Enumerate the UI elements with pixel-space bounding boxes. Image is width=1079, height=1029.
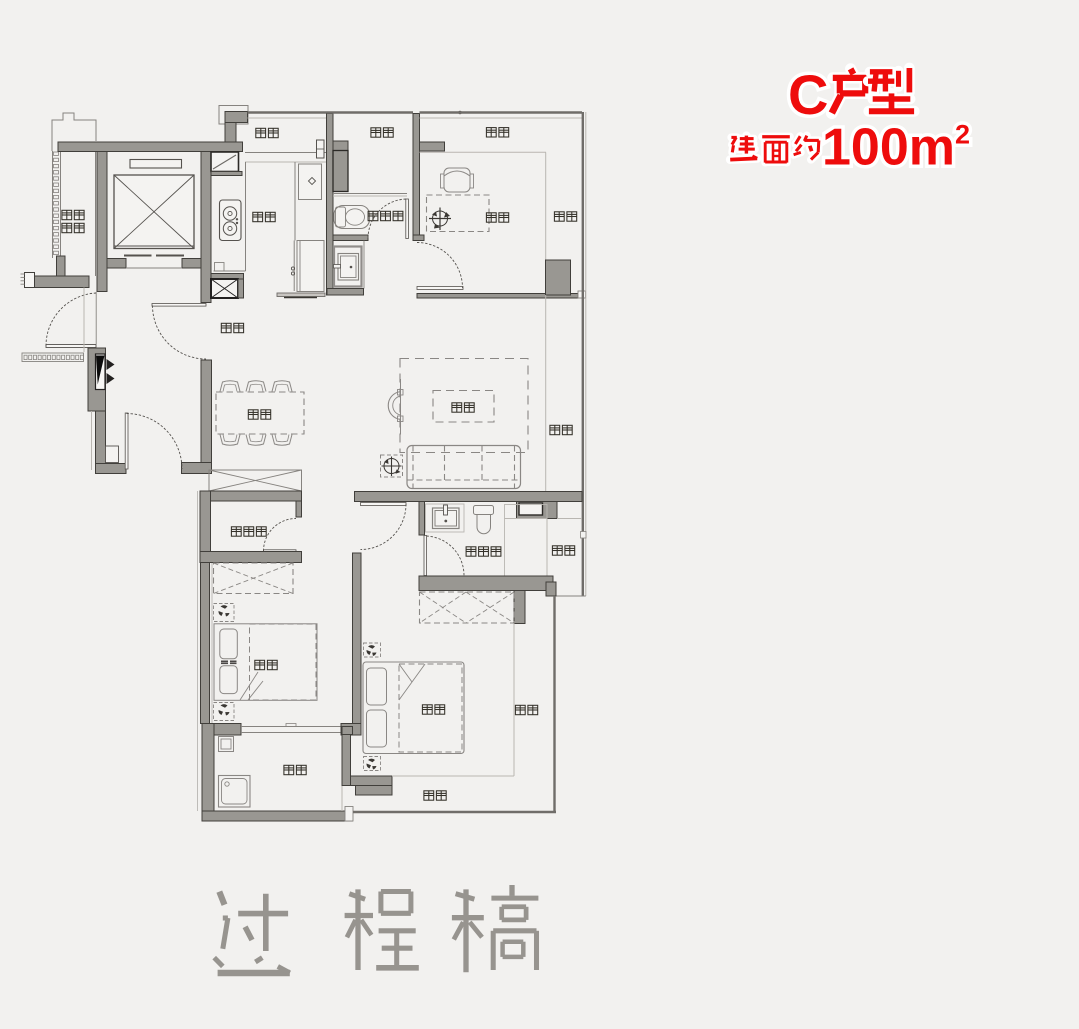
svg-text:C: C <box>788 63 828 126</box>
svg-text:100m2: 100m2 <box>822 119 970 177</box>
